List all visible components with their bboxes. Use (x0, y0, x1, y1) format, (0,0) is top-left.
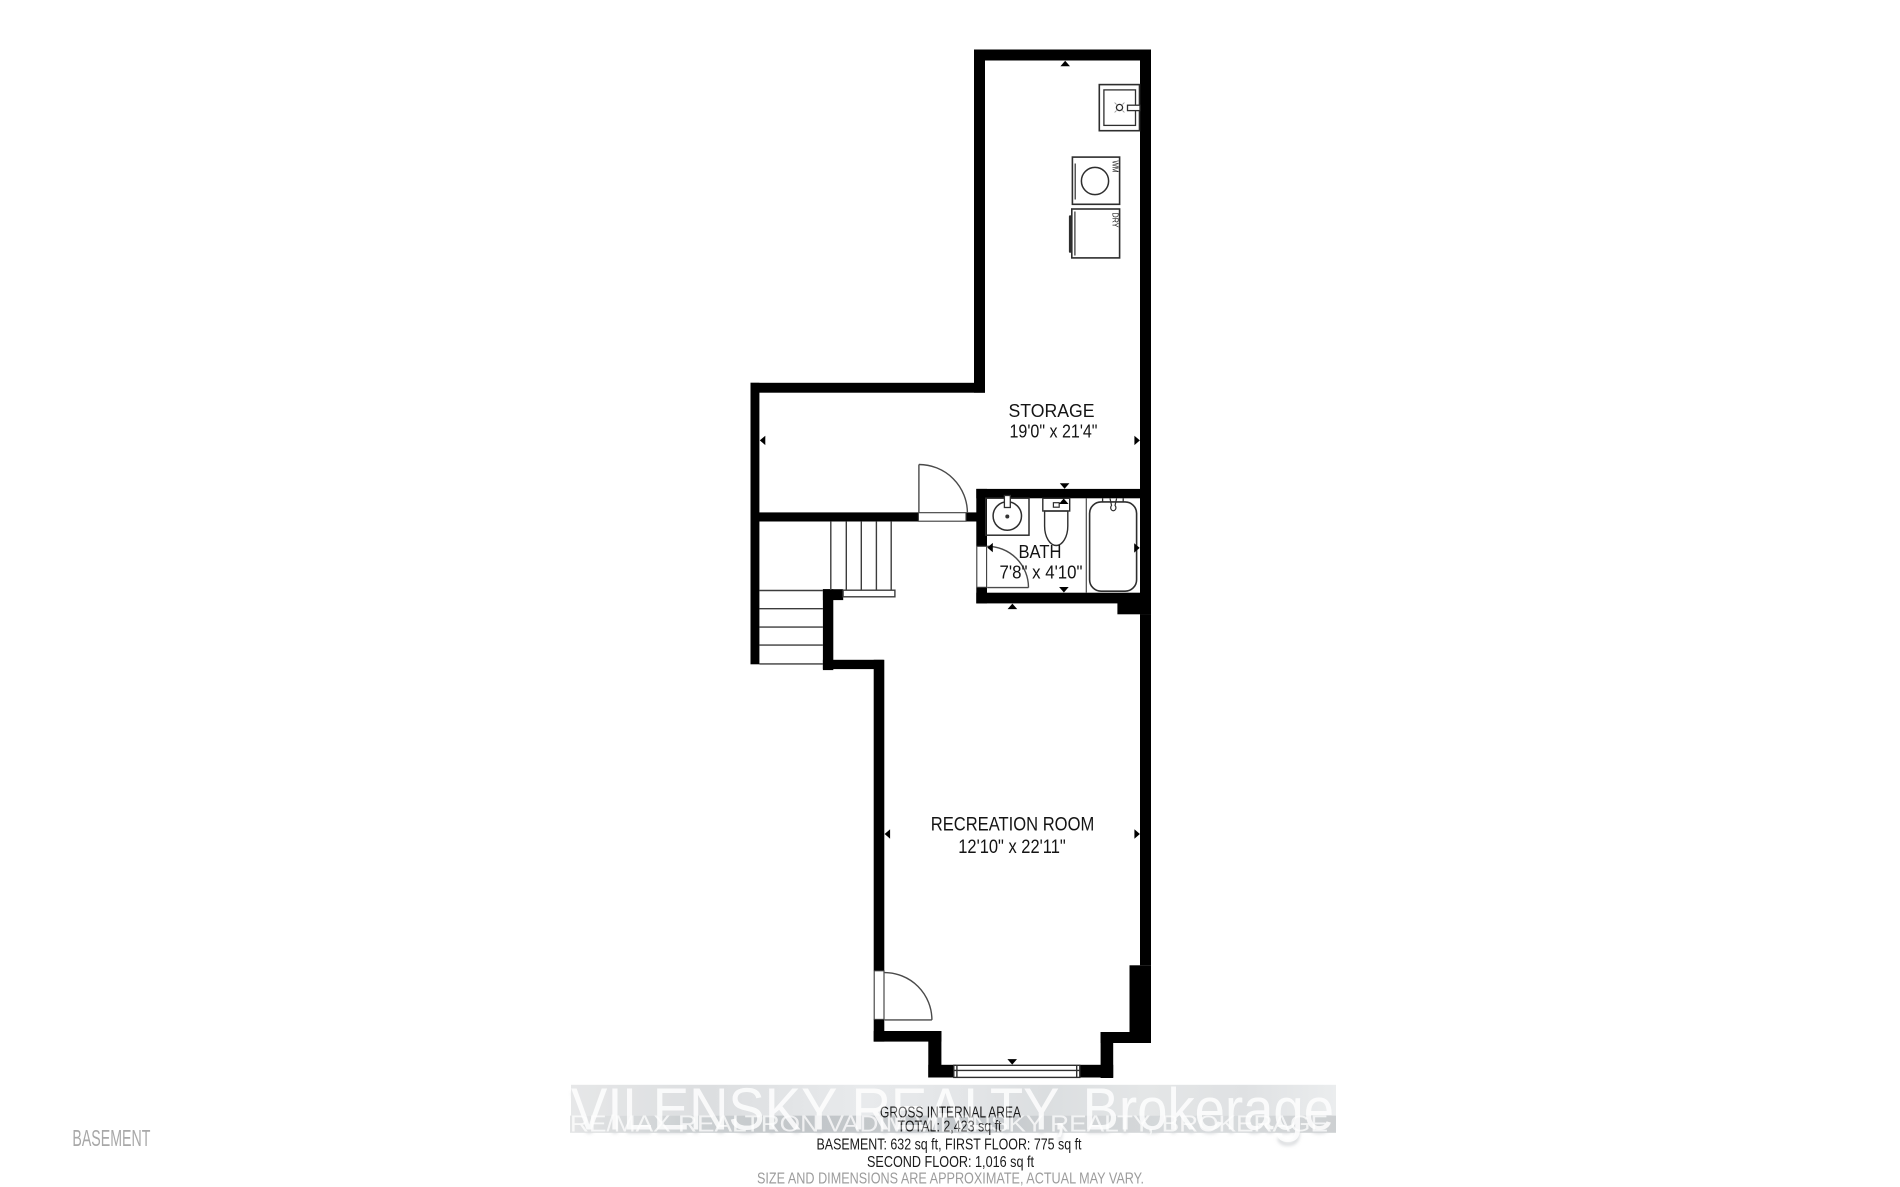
svg-text:RECREATION ROOM: RECREATION ROOM (931, 815, 1095, 836)
svg-text:BATH: BATH (1019, 542, 1062, 562)
svg-text:WM: WM (1111, 161, 1120, 173)
svg-text:7'8" x 4'10": 7'8" x 4'10" (1000, 563, 1083, 583)
svg-text:RE/MAX REALTRON VADIM VILENSKY: RE/MAX REALTRON VADIM VILENSKY REALTY, B… (570, 1110, 1328, 1136)
svg-text:DRY: DRY (1111, 213, 1120, 229)
svg-text:19'0" x 21'4": 19'0" x 21'4" (1010, 422, 1098, 442)
svg-text:BASEMENT: BASEMENT (72, 1125, 150, 1151)
svg-text:SIZE AND DIMENSIONS ARE APPROX: SIZE AND DIMENSIONS ARE APPROXIMATE, ACT… (757, 1170, 1144, 1187)
svg-text:STORAGE: STORAGE (1009, 401, 1095, 421)
svg-text:SECOND FLOOR: 1,016 sq ft: SECOND FLOOR: 1,016 sq ft (867, 1154, 1035, 1171)
svg-text:12'10" x 22'11": 12'10" x 22'11" (958, 837, 1066, 858)
